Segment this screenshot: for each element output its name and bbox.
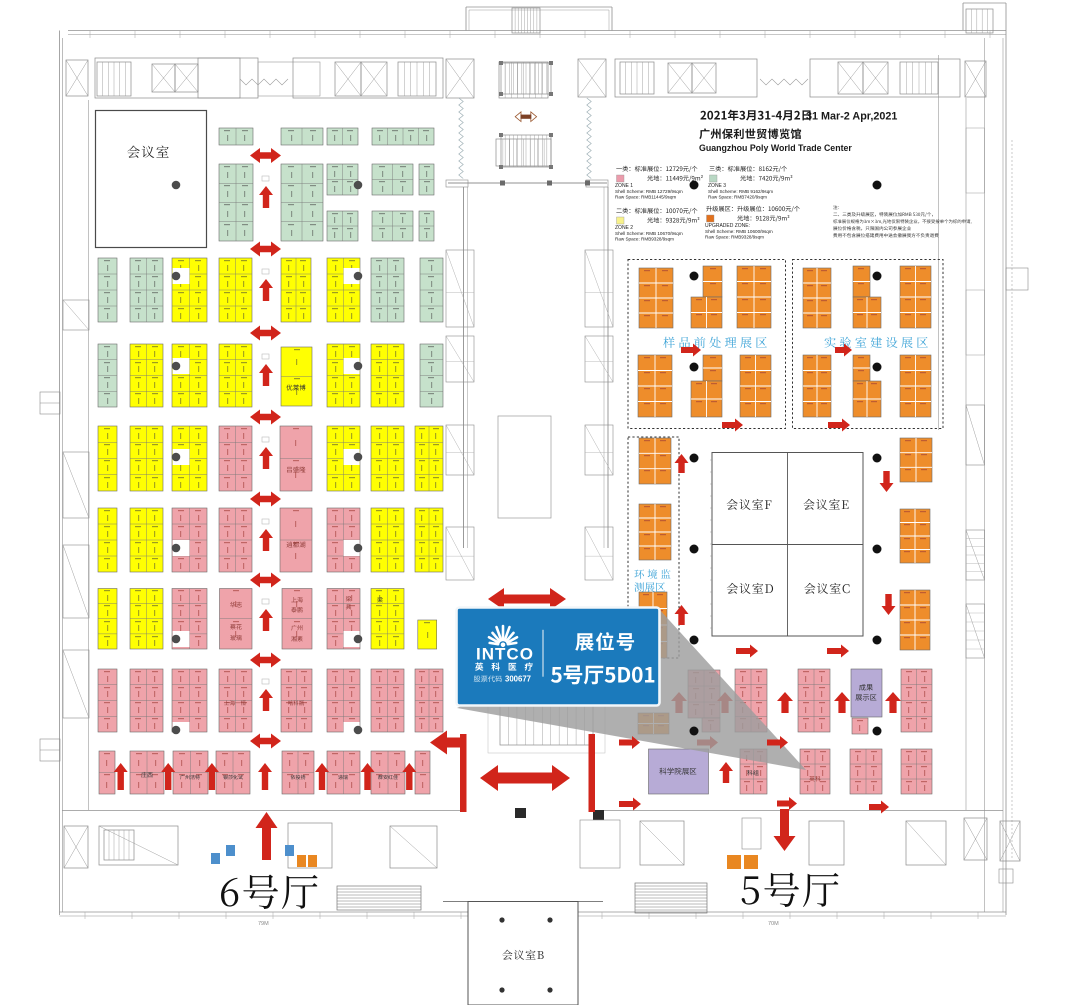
svg-text:300677: 300677: [505, 675, 531, 684]
svg-text:Shell Scheme: RMB 10600/9sqm: Shell Scheme: RMB 10600/9sqm: [705, 229, 773, 234]
svg-text:Raw Space: RMB9328/9sqm: Raw Space: RMB9328/9sqm: [615, 237, 674, 242]
svg-text:79M: 79M: [258, 921, 269, 927]
svg-text:Raw Space: RMB9328/9sqm: Raw Space: RMB9328/9sqm: [705, 235, 764, 240]
svg-text:70M: 70M: [768, 921, 779, 927]
svg-text:INTCO: INTCO: [476, 645, 534, 664]
svg-text:Shell Scheme: RMB 12729/9sqm: Shell Scheme: RMB 12729/9sqm: [615, 189, 683, 194]
svg-text:Shell Scheme: RMB 9162/9sqm: Shell Scheme: RMB 9162/9sqm: [708, 189, 773, 194]
svg-text:31 Mar-2 Apr,2021: 31 Mar-2 Apr,2021: [806, 111, 897, 123]
svg-text:Raw Space: RMB11445/9sqm: Raw Space: RMB11445/9sqm: [615, 195, 676, 200]
svg-text:Shell Scheme: RMB 10670/9sqm: Shell Scheme: RMB 10670/9sqm: [615, 231, 683, 236]
svg-text:Guangzhou Poly World Trade Cen: Guangzhou Poly World Trade Center: [699, 143, 852, 153]
svg-text:Raw Space: RMB7420/9sqm: Raw Space: RMB7420/9sqm: [708, 195, 767, 200]
